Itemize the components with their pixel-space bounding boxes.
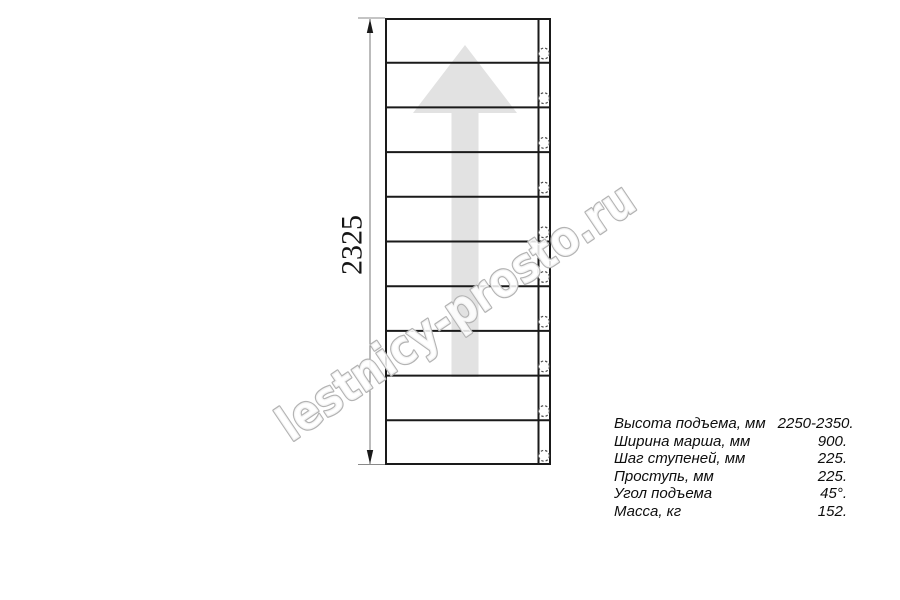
spec-row: Высота подъема, мм2250-2350.: [614, 415, 847, 433]
spec-label: Угол подъема: [614, 485, 712, 503]
fastener-circle: [539, 316, 550, 327]
spec-value: 152.: [818, 503, 847, 521]
spec-label: Высота подъема, мм: [614, 415, 766, 433]
spec-value: 45°.: [820, 485, 847, 503]
specs-table: Высота подъема, мм2250-2350.Ширина марша…: [614, 415, 847, 521]
spec-label: Масса, кг: [614, 503, 681, 521]
spec-label: Шаг ступеней, мм: [614, 450, 745, 468]
spec-value: 225.: [818, 450, 847, 468]
fastener-circle: [539, 48, 550, 59]
spec-label: Проступь, мм: [614, 468, 714, 486]
spec-row: Шаг ступеней, мм225.: [614, 450, 847, 468]
spec-value: 225.: [818, 468, 847, 486]
spec-label: Ширина марша, мм: [614, 433, 750, 451]
spec-value: 2250-2350.: [778, 415, 854, 433]
spec-row: Масса, кг152.: [614, 503, 847, 521]
spec-row: Проступь, мм225.: [614, 468, 847, 486]
fastener-circle: [539, 138, 550, 149]
fastener-circle: [539, 406, 550, 417]
dimension-arrowhead-bottom: [367, 450, 373, 464]
spec-row: Ширина марша, мм900.: [614, 433, 847, 451]
spec-value: 900.: [818, 433, 847, 451]
dimension-arrowhead-top: [367, 19, 373, 33]
fastener-circle: [539, 450, 550, 461]
fastener-circle: [539, 93, 550, 104]
spec-row: Угол подъема45°.: [614, 485, 847, 503]
dimension-label: 2325: [336, 215, 369, 275]
fastener-circle: [539, 361, 550, 372]
fastener-circle: [539, 182, 550, 193]
stair-drawing-page: 2325 lestnicy-prosto.ru Высота подъема, …: [0, 0, 900, 600]
